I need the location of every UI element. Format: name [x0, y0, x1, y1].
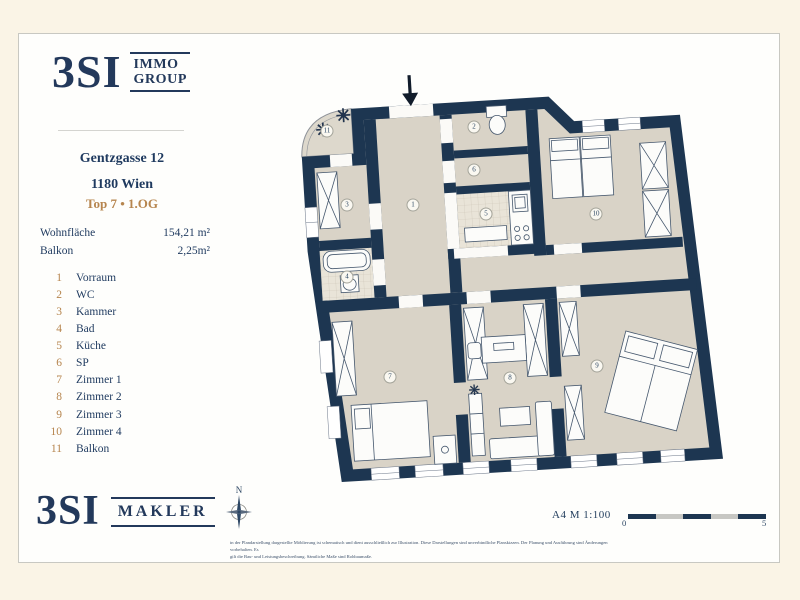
wardrobe-symbol: [317, 172, 340, 229]
kitchen-island-symbol: [464, 225, 507, 242]
bathtub-symbol: [323, 249, 371, 273]
entry-arrow-icon: [401, 75, 419, 107]
room-badge: 1: [407, 199, 420, 212]
room-badge: 8: [504, 372, 517, 385]
wardrobe-symbol: [332, 321, 356, 396]
bed-symbol: [351, 401, 430, 462]
room-badge: 3: [341, 199, 354, 212]
room-badge: 11: [321, 125, 334, 138]
room-badge: 6: [468, 164, 481, 177]
room-badge: 10: [590, 208, 603, 221]
room-badge: 4: [341, 271, 354, 284]
room-badge: 7: [384, 371, 397, 384]
floor-plan: [0, 0, 800, 600]
kitchen-counter-symbol: [508, 190, 533, 245]
room-badge: 5: [480, 208, 493, 221]
desk-symbol: [433, 435, 457, 464]
room-badge: 9: [591, 360, 604, 373]
room-badge: 2: [468, 121, 481, 134]
table-symbol: [500, 406, 531, 426]
